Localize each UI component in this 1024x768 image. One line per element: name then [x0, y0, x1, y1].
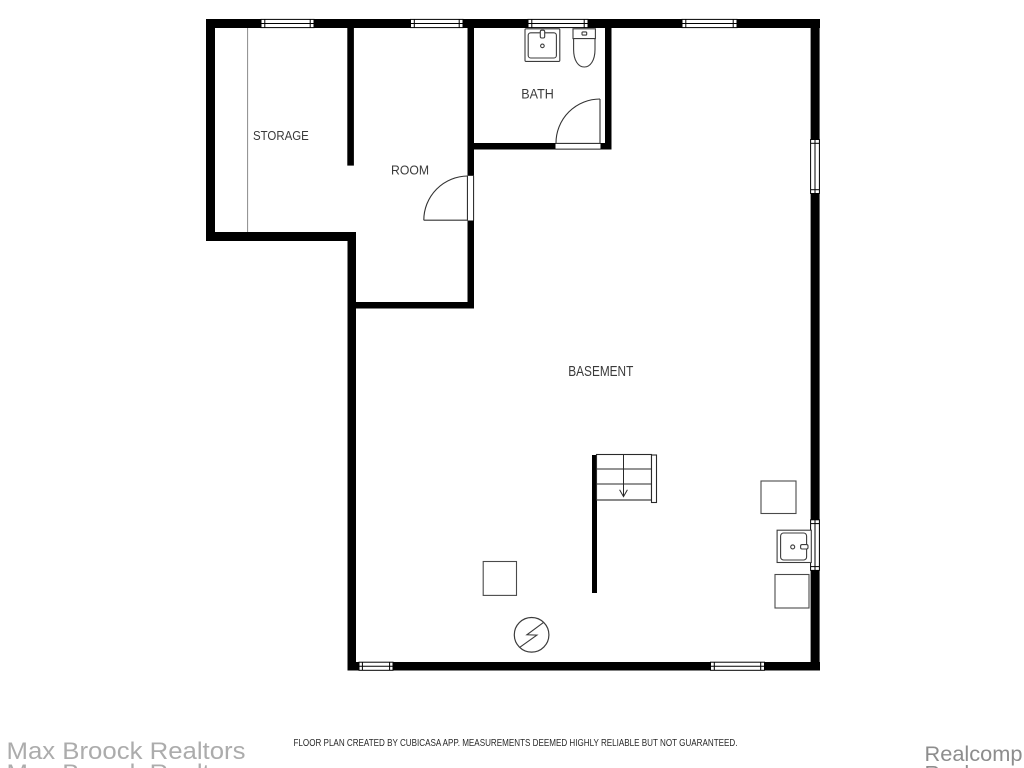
svg-text:BATH: BATH [521, 85, 554, 101]
svg-text:Realcomp: Realcomp [925, 763, 1023, 768]
svg-text:ROOM: ROOM [391, 163, 429, 178]
svg-text:BASEMENT: BASEMENT [568, 364, 633, 380]
svg-text:STORAGE: STORAGE [253, 128, 309, 143]
svg-text:Max Broock Realtors: Max Broock Realtors [7, 760, 246, 768]
svg-text:FLOOR PLAN CREATED BY CUBICASA: FLOOR PLAN CREATED BY CUBICASA APP. MEAS… [294, 738, 738, 749]
